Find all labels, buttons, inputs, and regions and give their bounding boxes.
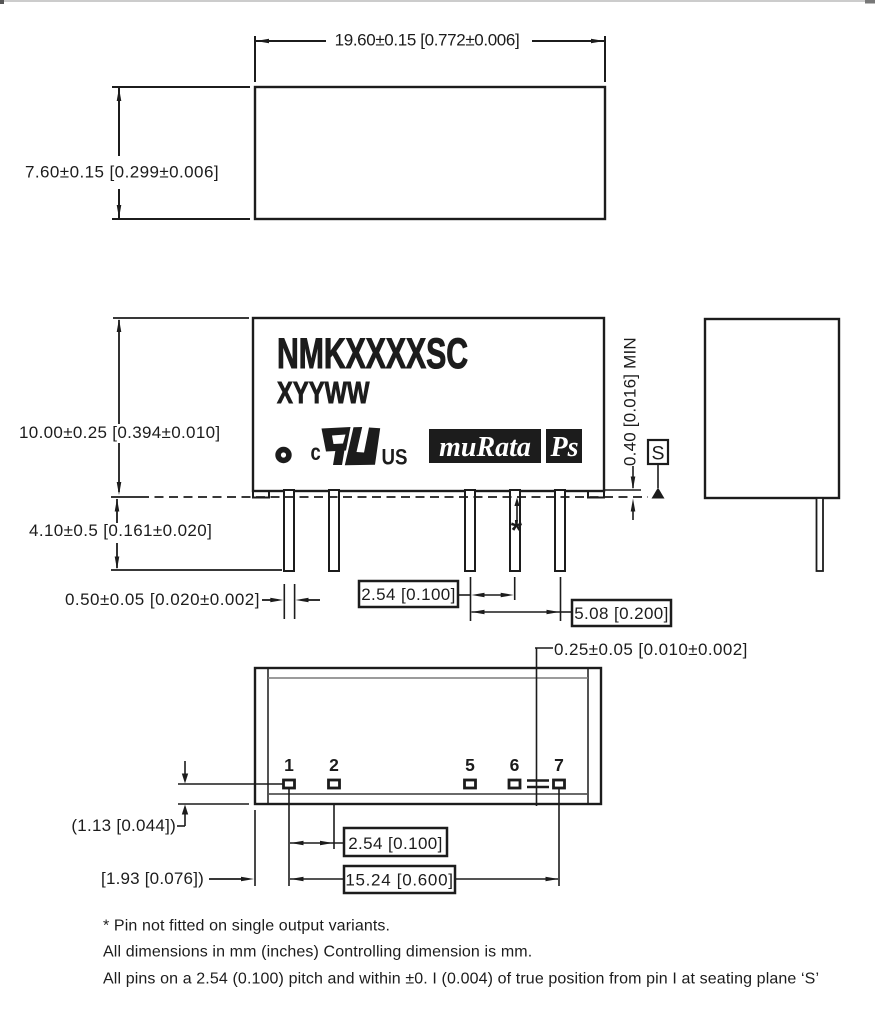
- svg-text:(1.13 [0.044]): (1.13 [0.044]): [71, 816, 176, 835]
- svg-text:2: 2: [329, 755, 339, 775]
- svg-text:7.60±0.15 [0.299±0.006]: 7.60±0.15 [0.299±0.006]: [25, 163, 219, 182]
- svg-text:XYYWW: XYYWW: [277, 375, 370, 410]
- svg-text:15.24 [0.600]: 15.24 [0.600]: [345, 871, 453, 890]
- svg-text:* Pin not fitted on single out: * Pin not fitted on single output varian…: [103, 918, 390, 935]
- svg-text:7: 7: [554, 755, 564, 775]
- svg-text:*: *: [511, 515, 523, 547]
- svg-text:10.00±0.25 [0.394±0.010]: 10.00±0.25 [0.394±0.010]: [19, 423, 220, 442]
- svg-text:1: 1: [284, 755, 294, 775]
- svg-text:Ps: Ps: [550, 432, 579, 463]
- svg-text:5.08 [0.200]: 5.08 [0.200]: [574, 604, 669, 623]
- svg-text:0.25±0.05 [0.010±0.002]: 0.25±0.05 [0.010±0.002]: [554, 640, 748, 659]
- svg-text:19.60±0.15 [0.772±0.006]: 19.60±0.15 [0.772±0.006]: [335, 31, 520, 50]
- svg-text:5: 5: [465, 755, 475, 775]
- svg-text:2.54 [0.100]: 2.54 [0.100]: [361, 585, 456, 604]
- svg-text:muRata: muRata: [439, 432, 531, 463]
- svg-text:All pins on a 2.54 (0.100) pit: All pins on a 2.54 (0.100) pitch and wit…: [103, 971, 819, 988]
- svg-text:[1.93 [0.076]): [1.93 [0.076]): [101, 869, 204, 888]
- svg-text:2.54 [0.100]: 2.54 [0.100]: [348, 834, 443, 853]
- svg-text:0.50±0.05 [0.020±0.002]: 0.50±0.05 [0.020±0.002]: [65, 590, 260, 609]
- svg-text:All dimensions in mm (inches): All dimensions in mm (inches) Controllin…: [103, 944, 532, 961]
- svg-text:US: US: [382, 446, 408, 470]
- svg-text:NMKXXXXSC: NMKXXXXSC: [277, 330, 468, 377]
- svg-text:c: c: [311, 440, 321, 465]
- svg-text:S: S: [651, 443, 664, 465]
- svg-text:4.10±0.5 [0.161±0.020]: 4.10±0.5 [0.161±0.020]: [29, 521, 212, 540]
- svg-text:0.40 [0.016] MIN: 0.40 [0.016] MIN: [621, 337, 640, 466]
- svg-text:6: 6: [510, 755, 520, 775]
